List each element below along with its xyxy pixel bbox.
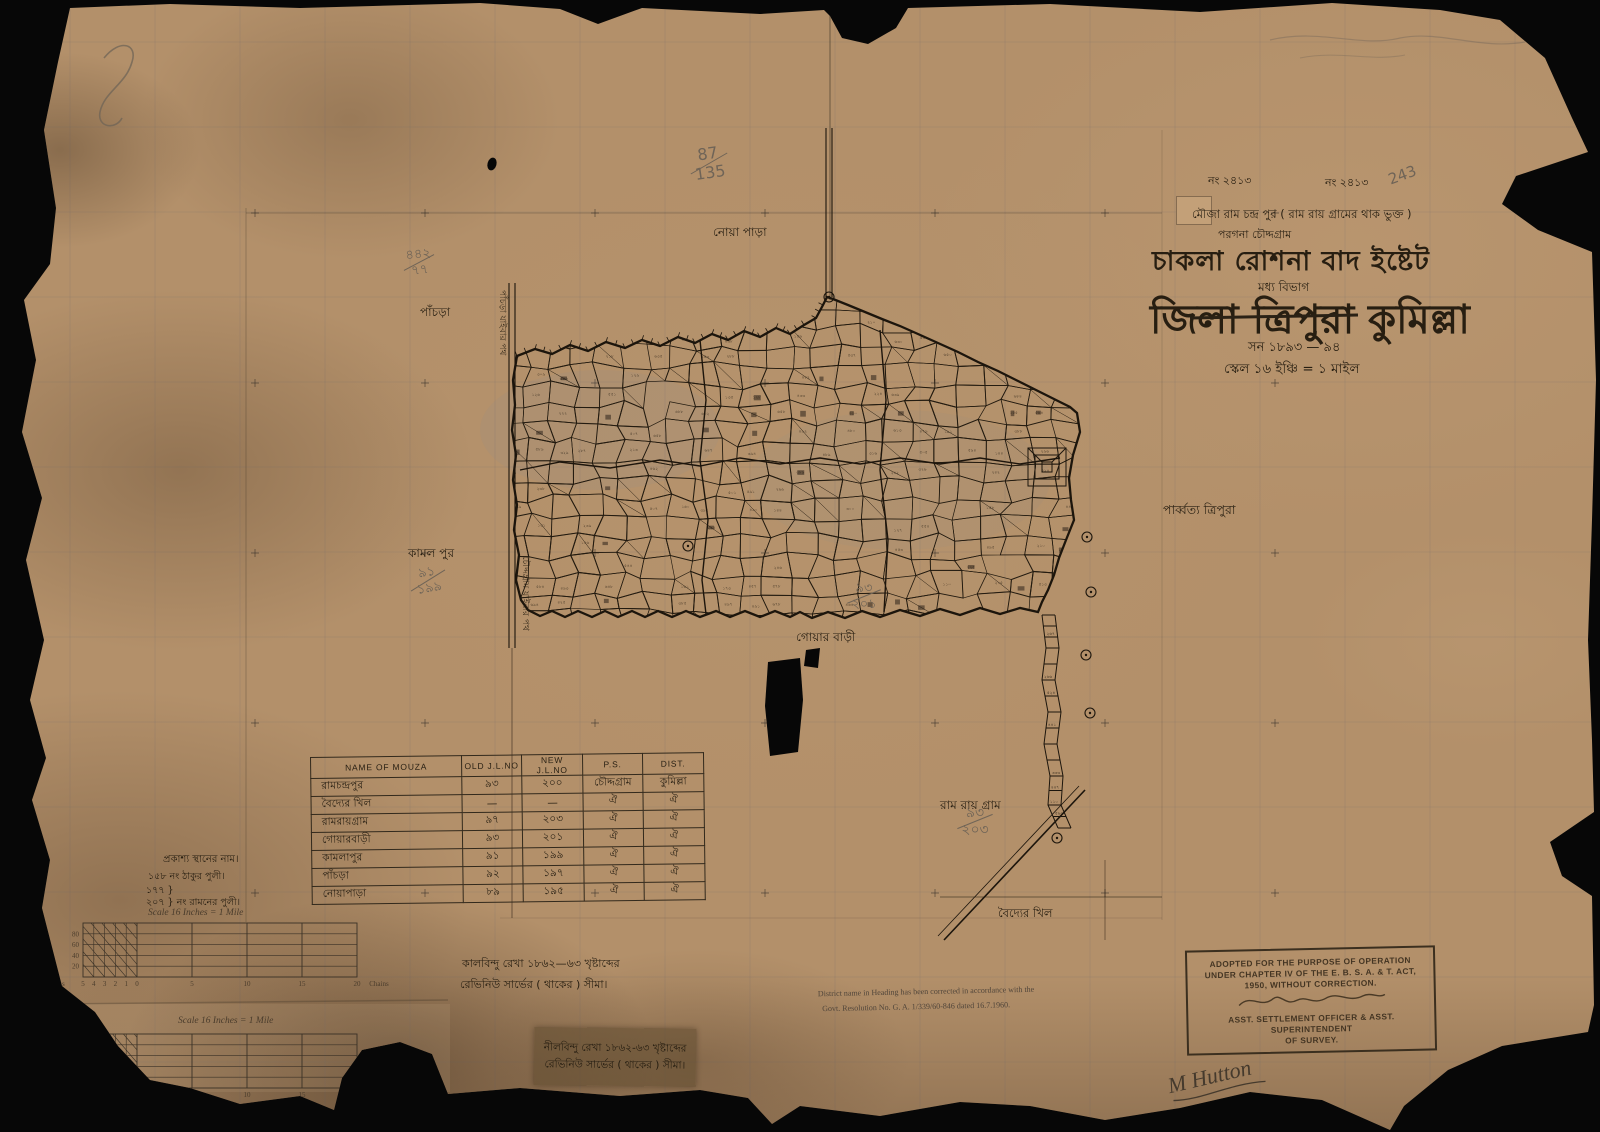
- fraction-bottom: ৭৭: [402, 262, 437, 278]
- black-dot-note-line2: রেভিনিউ সার্ভের ( থাকের ) সীমা।: [460, 976, 607, 995]
- table-cell: ২০৩: [522, 811, 583, 830]
- text-layer: নং ২৪১৩ নং ২৪১৩ 243 মৌজা রাম চন্দ্র পুর …: [0, 0, 1600, 1132]
- table-header-cell: OLD J.L.NO: [461, 755, 521, 777]
- label-goarbari: গোয়ার বাড়ী: [796, 629, 855, 649]
- svg-text:60: 60: [72, 1052, 80, 1060]
- district-new-name: কুমিল্লা: [1368, 297, 1470, 343]
- table-cell: ঐ: [644, 882, 705, 901]
- table-cell: ৯১: [463, 848, 523, 867]
- table-row: নোয়াপাড়া৮৯১৯৫ঐঐ: [312, 882, 705, 905]
- table-cell: ঐ: [644, 864, 705, 883]
- district-old-name: ত্রিপুরা: [1253, 297, 1355, 343]
- table-cell: —: [462, 794, 522, 813]
- label-noapara: নোয়া পাড়া: [713, 224, 767, 244]
- table-cell: পাঁচড়া: [312, 867, 463, 887]
- sheet-number-left: নং ২৪১৩: [1208, 172, 1251, 191]
- fraction-top: ৯৩: [956, 806, 994, 820]
- table-cell: ঐ: [643, 828, 704, 847]
- black-dot-note-line1: কালবিন্দু রেখা ১৮৬২—৬৩ খৃষ্টাব্দের: [462, 955, 620, 974]
- table-cell: ঐ: [583, 828, 643, 847]
- svg-text:20: 20: [72, 1074, 80, 1082]
- public-places-title: প্রকাশ্য স্থানের নাম।: [163, 852, 239, 869]
- pencil-fraction-87-135: 87135: [686, 143, 732, 184]
- table-cell: ৯৩: [462, 830, 522, 849]
- table-cell: ২০১: [522, 829, 583, 848]
- fraction-top: ৯৩: [846, 582, 882, 595]
- pencil-number: 243: [1386, 162, 1419, 189]
- scale-bar-title-1: Scale 16 Inches = 1 Mile: [148, 908, 243, 918]
- pencil-fraction-442: ৪৪২৭৭: [401, 246, 438, 278]
- table-cell: রামচন্দ্রপুর: [311, 777, 462, 797]
- svg-text:80: 80: [72, 1041, 80, 1049]
- table-cell: ৮৯: [463, 884, 523, 903]
- table-cell: কামলাপুর: [312, 849, 463, 869]
- svg-text:Chains: Chains: [369, 1091, 389, 1099]
- table-header-cell: P.S.: [582, 753, 642, 775]
- mouza-table-body: রামচন্দ্রপুর৯৩২০০চৌদ্দগ্রামকুমিল্লাবৈদ্য…: [311, 774, 706, 905]
- svg-text:2: 2: [114, 1091, 118, 1099]
- table-cell: ঐ: [644, 846, 705, 865]
- table-header-cell: DIST.: [642, 753, 703, 775]
- mouza-line: মৌজা রাম চন্দ্র পুর ( রাম রায় গ্রামের থ…: [1192, 206, 1412, 225]
- svg-text:1: 1: [124, 1091, 128, 1099]
- pencil-fraction-goarbari: ৯৩২০১: [846, 582, 882, 611]
- label-pachra: পাঁচড়া: [420, 304, 450, 324]
- table-cell: ১৯৯: [523, 847, 584, 866]
- table-cell: নোয়াপাড়া: [312, 885, 463, 905]
- svg-text:Chains: Chains: [45, 1091, 65, 1099]
- scale-statement: স্কেল ১৬ ইঞ্চি = ১ মাইল: [1224, 358, 1360, 381]
- district-correction-note: District name in Heading has been correc…: [818, 982, 1035, 1017]
- blue-dot-note-patch: নীলবিন্দু রেখা ১৮৬২-৬৩ খৃষ্টাব্দের রেভিন…: [534, 1027, 697, 1086]
- table-cell: ঐ: [584, 864, 644, 883]
- table-cell: ঐ: [583, 792, 643, 811]
- pencil-fraction-ramraygram: ৯৩২০৩: [956, 806, 994, 837]
- label-baidyer-khil: বৈদ্যের খিল: [998, 905, 1052, 924]
- mouza-table: NAME OF MOUZAOLD J.L.NONEW J.L.NOP.S.DIS…: [310, 752, 706, 905]
- label-west-road: পাঁচড়া যাইবার পথ: [495, 290, 510, 355]
- table-cell: গোয়ারবাড়ী: [311, 831, 462, 851]
- survey-year: সন ১৮৯৩ — ৯৪: [1248, 338, 1340, 359]
- district-word: জিলা: [1150, 297, 1239, 343]
- sheet-number-right: নং ২৪১৩: [1325, 174, 1368, 193]
- table-cell: কুমিল্লা: [643, 774, 704, 793]
- svg-text:5: 5: [81, 1091, 85, 1099]
- label-south-road: চৌদ্দগ্রাম যাইবার পথ: [518, 556, 533, 631]
- svg-text:0: 0: [135, 1091, 139, 1099]
- table-cell: ১৯৫: [523, 883, 584, 902]
- label-kamalpur: কামল পুর: [408, 545, 454, 565]
- pencil-fraction-kamalpur: ৯১১৯৯: [406, 563, 450, 599]
- scale-bar-title-2: Scale 16 Inches = 1 Mile: [178, 1016, 273, 1026]
- table-cell: চৌদ্দগ্রাম: [583, 774, 643, 793]
- surveyor-signature: M Hutton: [1165, 1051, 1271, 1109]
- table-cell: ঐ: [643, 792, 704, 811]
- scanned-map-sheet: ৫৪৩৪৬৯১৪৫৩৬০২১০৬৬০৩৯৫১১২২১৪৫৭৮৪৯৮১৫৬৬৩০৫…: [0, 0, 1600, 1132]
- label-parbatya-tripura: পার্ব্বত্য ত্রিপুরা: [1163, 502, 1235, 522]
- svg-text:40: 40: [72, 1063, 80, 1071]
- svg-text:20: 20: [354, 1091, 362, 1099]
- table-cell: বৈদ্যের খিল: [311, 795, 462, 815]
- table-cell: ১৯৭: [523, 865, 584, 884]
- correction-line2: Govt. Resolution No. G. A. 1/339/60-846 …: [818, 997, 1035, 1017]
- adoption-stamp: ADOPTED FOR THE PURPOSE OF OPERATION UND…: [1185, 945, 1437, 1055]
- table-cell: —: [522, 793, 583, 812]
- table-cell: ঐ: [583, 810, 643, 829]
- stamp-signature-scrawl: [1231, 986, 1391, 1011]
- blue-dot-note-line2: রেভিনিউ সার্ভের ( থাকের ) সীমা।: [534, 1056, 696, 1074]
- fraction-bottom: 135: [688, 162, 732, 184]
- table-cell: ৯২: [463, 866, 523, 885]
- table-cell: ৯৩: [462, 776, 522, 795]
- blue-dot-note-line1: নীলবিন্দু রেখা ১৮৬২-৬৩ খৃষ্টাব্দের: [534, 1039, 696, 1057]
- svg-text:4: 4: [92, 1091, 96, 1099]
- table-cell: ঐ: [643, 810, 704, 829]
- table-cell: ৯৭: [462, 812, 522, 831]
- table-cell: ২০০: [522, 775, 583, 794]
- table-cell: ঐ: [584, 846, 644, 865]
- svg-text:3: 3: [103, 1091, 107, 1099]
- table-cell: ঐ: [584, 882, 644, 901]
- public-place-item: ১৫৮ নং ঠাকুর পুলী।: [148, 870, 225, 885]
- table-header-cell: NEW J.L.NO: [521, 754, 582, 776]
- svg-text:5: 5: [190, 1091, 194, 1099]
- table-cell: রামরায়গ্রাম: [311, 813, 462, 833]
- table-header-cell: NAME OF MOUZA: [311, 756, 462, 779]
